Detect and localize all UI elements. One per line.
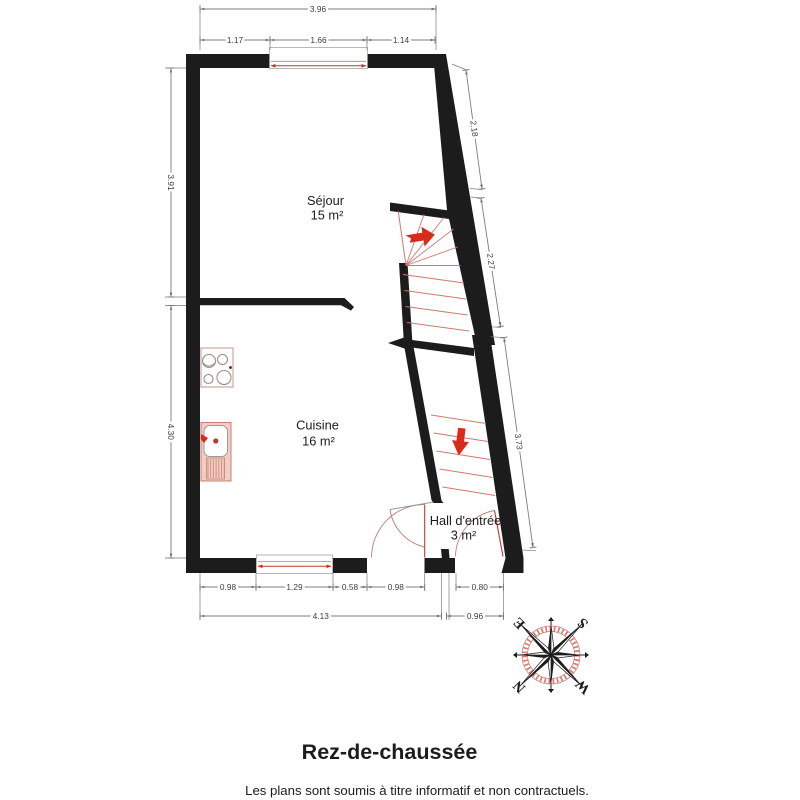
svg-text:0.80: 0.80 bbox=[472, 582, 489, 592]
svg-text:0.58: 0.58 bbox=[342, 582, 359, 592]
svg-text:Cuisine: Cuisine bbox=[296, 418, 339, 433]
svg-text:1.14: 1.14 bbox=[393, 35, 410, 45]
svg-text:S: S bbox=[575, 614, 592, 631]
svg-text:0.98: 0.98 bbox=[220, 582, 237, 592]
svg-text:Rez-de-chaussée: Rez-de-chaussée bbox=[302, 740, 478, 764]
svg-text:0.98: 0.98 bbox=[388, 582, 405, 592]
svg-text:Les plans sont soumis à titre: Les plans sont soumis à titre informatif… bbox=[245, 783, 589, 798]
svg-text:3.91: 3.91 bbox=[166, 174, 176, 191]
svg-text:3.96: 3.96 bbox=[310, 4, 327, 14]
svg-text:4.13: 4.13 bbox=[313, 611, 330, 621]
svg-text:4.30: 4.30 bbox=[166, 424, 176, 441]
svg-text:16 m²: 16 m² bbox=[302, 434, 335, 449]
svg-text:3 m²: 3 m² bbox=[451, 528, 477, 543]
svg-text:Hall d'entrée: Hall d'entrée bbox=[430, 513, 501, 528]
svg-text:1.66: 1.66 bbox=[310, 35, 327, 45]
svg-text:1.17: 1.17 bbox=[227, 35, 244, 45]
svg-text:3.73: 3.73 bbox=[513, 433, 525, 451]
svg-text:Séjour: Séjour bbox=[307, 193, 345, 208]
svg-text:15 m²: 15 m² bbox=[311, 208, 344, 223]
svg-text:2.27: 2.27 bbox=[485, 253, 497, 271]
svg-text:1.29: 1.29 bbox=[286, 582, 303, 592]
svg-text:0.96: 0.96 bbox=[467, 611, 484, 621]
svg-text:2.18: 2.18 bbox=[468, 120, 480, 138]
